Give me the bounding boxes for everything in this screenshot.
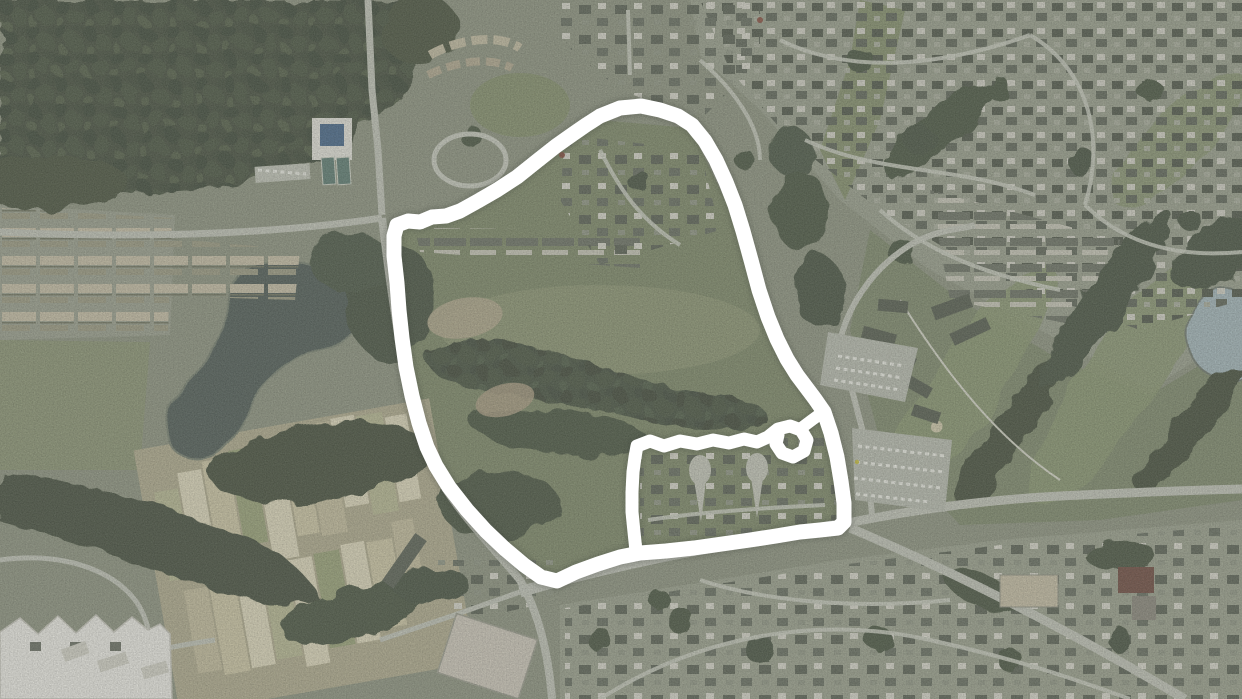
aerial-basemap bbox=[0, 0, 1242, 699]
aerial-map bbox=[0, 0, 1242, 699]
